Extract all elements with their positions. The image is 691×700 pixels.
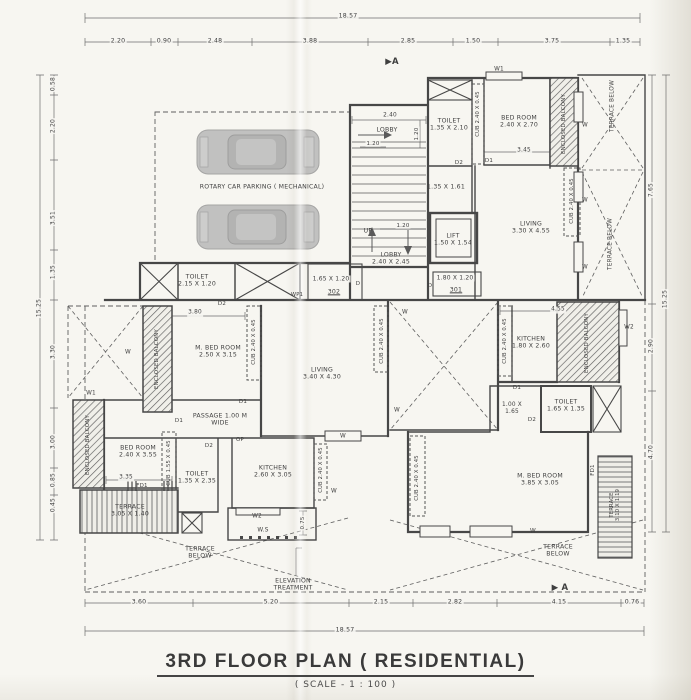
cub-ml-label: CUB 2.40 X 0.45 [251, 319, 257, 365]
door-d1-passage: D1 [175, 418, 183, 424]
door-d2-bl: D2 [205, 443, 213, 449]
passage-161-label: 1.35 X 1.61 [427, 183, 465, 190]
terrace-below-br: TERRACE BELOW [543, 544, 573, 559]
dim-bottom-2: 5.20 [263, 598, 280, 605]
dim-top-4: 3.88 [302, 37, 319, 44]
window-w1-top: W1 [494, 67, 504, 74]
door-d1-mr: D1 [513, 385, 521, 391]
cub-tr2-label: CUB 2.40 X 0.45 [569, 178, 575, 224]
window-w-kitchen-bl: W [331, 489, 337, 496]
dim-lobby-1: 1.20 [365, 141, 380, 147]
parking-label: ROTARY CAR PARKING ( MECHANICAL) [200, 183, 324, 190]
terrace-below-tr2: TERRACE BELOW [608, 218, 615, 270]
kitchen-mr-label: KITCHEN 1.80 X 2.60 [512, 336, 550, 351]
dim-left-7: 0.85 [49, 472, 56, 488]
terrace-bl-label: TERRACE 3.05 X 1.40 [111, 504, 149, 519]
drawing-title: 3RD FLOOR PLAN ( RESIDENTIAL) [157, 651, 533, 677]
dim-left-1: 0.58 [49, 76, 56, 92]
dim-top-6: 1.50 [465, 37, 482, 44]
door-fd1-bl: FD1 [136, 483, 148, 489]
door-301: D [428, 283, 432, 289]
cub-mr2-label: CUB 2.40 X 0.45 [379, 318, 385, 364]
dim-bottom-4: 2.82 [447, 598, 464, 605]
window-w-tr3: W [582, 265, 588, 272]
dim-kitchen-tr: 4.55 [550, 307, 566, 314]
duct-302-label: 302 [328, 288, 340, 295]
toilet-bl-label: TOILET 1.35 X 2.35 [178, 471, 216, 486]
dim-left-4: 1.35 [49, 264, 56, 280]
dim-bottom-1: 3.60 [131, 598, 148, 605]
door-fd1-br: FD1 [590, 464, 596, 476]
door-d2-mr: D2 [528, 417, 536, 423]
section-marker-bottom: ▶ A [552, 583, 569, 593]
window-w2-mr: W2 [624, 325, 634, 332]
living-ml-label: LIVING 3.40 X 4.30 [303, 367, 341, 382]
balcony-mr-label: ENCLOSED BALCONY [584, 313, 590, 373]
door-302: D [356, 281, 360, 287]
door-d1-living: D1 [239, 399, 247, 405]
window-w1-ml: W1 [86, 391, 96, 398]
dim-right-3: 4.70 [647, 444, 654, 460]
toilet-tr-label: TOILET 1.35 X 2.10 [430, 118, 468, 133]
window-w-tr2: W [582, 198, 588, 205]
ws-label: W.S [257, 528, 268, 535]
vent-wp1: WP1 [291, 292, 303, 298]
window-w-living-r: W [394, 408, 400, 415]
cub-bl-label: CUB 1.55 X 0.45 [166, 440, 172, 486]
title-block: 3RD FLOOR PLAN ( RESIDENTIAL) ( SCALE - … [0, 651, 691, 690]
elevation-treatment-label: ELEVATION TREATMENT [274, 578, 313, 593]
dim-top-2: 0.90 [156, 37, 173, 44]
window-w-ml: W [125, 350, 131, 357]
dim-left-6: 3.00 [49, 434, 56, 450]
dim-bedroom-tr: 3.45 [516, 148, 532, 155]
mbedroom-br-label: M. BED ROOM 3.85 X 3.05 [517, 473, 563, 488]
drawing-sheet: 18.572.200.902.483.882.851.503.751.353.6… [0, 0, 691, 700]
lobby-upper-label: LOBBY [376, 126, 397, 133]
dim-top-total: 18.57 [338, 12, 359, 19]
bedroom-tr-label: BED ROOM 2.40 X 2.70 [500, 115, 538, 130]
bedroom-bl-label: BED ROOM 2.40 X 3.55 [119, 445, 157, 460]
dim-left-8: 0.45 [49, 497, 56, 513]
cub-br-label: CUB 2.40 X 0.45 [414, 455, 420, 501]
window-w-mr: W [402, 310, 408, 317]
terrace-below-tr1: TERRACE BELOW [610, 80, 617, 132]
dim-bottom-6: 0.76 [624, 598, 641, 605]
dim-left-3: 3.51 [49, 210, 56, 226]
dim-right-total: 15.25 [661, 289, 668, 309]
window-w-living-b: W [340, 434, 346, 441]
toilet-mr-label: TOILET 1.65 X 1.35 [547, 399, 585, 414]
dim-top-3: 2.48 [207, 37, 224, 44]
dim-top-5: 2.85 [400, 37, 417, 44]
lobby-main-label: LOBBY 2.40 X 2.45 [372, 252, 410, 267]
lobby-mr-size: 1.00 X 1.65 [502, 402, 522, 416]
cub-tr-label: CUB 2.40 X 0.45 [475, 91, 481, 137]
duct-301-size: 1.80 X 1.20 [436, 274, 475, 281]
dim-top-8: 1.35 [615, 37, 632, 44]
opening-op: OP [236, 437, 244, 443]
section-marker-top: ▶A [385, 57, 399, 67]
window-w-br: W [530, 529, 536, 536]
dim-top-1: 2.20 [110, 37, 127, 44]
drawing-scale-note: ( SCALE - 1 : 100 ) [0, 680, 691, 690]
dim-bottom-3: 2.15 [373, 598, 390, 605]
lift-label: LIFT 1.50 X 1.54 [434, 233, 472, 248]
dim-lobby-2: 1.20 [414, 126, 420, 141]
balcony-tr-label: ENCLOSED BALCONY [561, 94, 567, 154]
cub-mr1-label: CUB 2.40 X 0.45 [502, 318, 508, 364]
door-d2-tl: D2 [218, 301, 226, 307]
dim-stair-width: 2.40 [382, 113, 398, 120]
window-w2-ws: W2 [252, 514, 262, 521]
stair-up-label: UP [364, 227, 373, 234]
dim-right-1: 7.65 [647, 182, 654, 198]
staircase [352, 135, 426, 256]
dim-stair-landing: 1.20 [395, 223, 410, 229]
dim-left-5: 3.30 [49, 344, 56, 360]
door-d1-tr: D1 [485, 158, 493, 164]
terrace-br-label: TERRACE 3.10 X 1.19 [609, 489, 621, 521]
dim-top-7: 3.75 [544, 37, 561, 44]
balcony-ml-label: ENCLOSED BALCONY [154, 329, 160, 389]
window-w-tr1: W [582, 123, 588, 130]
dim-bottom-5: 4.15 [551, 598, 568, 605]
dim-left-total: 15.25 [35, 298, 42, 318]
door-d2-tr: D2 [455, 160, 463, 166]
living-tr-label: LIVING 3.30 X 4.55 [512, 221, 550, 236]
terrace-below-bl: TERRACE BELOW [185, 546, 215, 561]
dim-bottom-total: 18.57 [335, 626, 356, 633]
elevation-dots [240, 536, 297, 539]
dim-left-2: 2.20 [49, 118, 56, 134]
passage-label: PASSAGE 1.00 M WIDE [193, 413, 247, 428]
mbedroom-ml-label: M. BED ROOM 2.50 X 3.15 [195, 345, 241, 360]
duct-301-label: 301 [450, 286, 462, 293]
dim-bedroom-bl: 3.35 [118, 475, 134, 482]
dim-mbed-tl: 3.80 [187, 310, 203, 317]
duct-302-size: 1.65 X 1.20 [312, 275, 351, 282]
cub-kitchen-bl: CUB 2.40 X 0.45 [318, 447, 324, 493]
dim-right-2: 2.90 [647, 338, 654, 354]
kitchen-bl-label: KITCHEN 2.60 X 3.05 [254, 465, 292, 480]
balcony-ml2-label: ENCLOSED BALCONY [85, 415, 91, 475]
dim-ws: 0.75 [300, 515, 306, 530]
toilet-tl-label: TOILET 2.15 X 1.20 [178, 274, 216, 289]
